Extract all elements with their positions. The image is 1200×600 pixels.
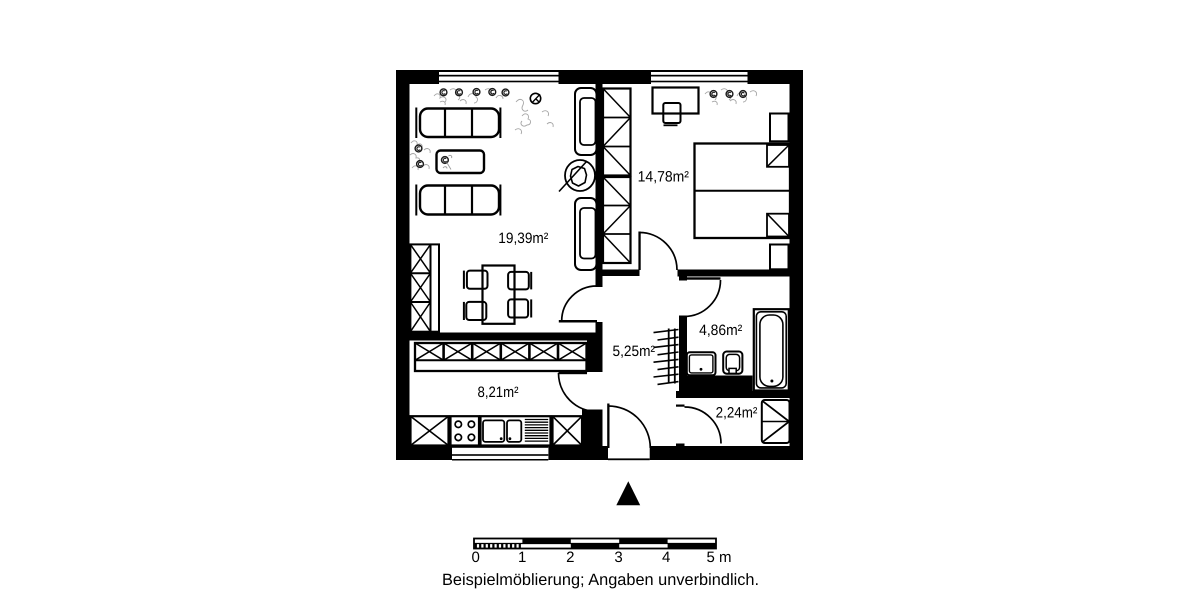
svg-text:8,21m²: 8,21m² <box>478 384 519 401</box>
svg-text:1: 1 <box>518 549 526 566</box>
svg-text:5,25m²: 5,25m² <box>613 343 656 360</box>
svg-text:0: 0 <box>472 549 480 566</box>
svg-text:14,78m²: 14,78m² <box>638 169 689 186</box>
svg-text:19,39m²: 19,39m² <box>498 230 548 247</box>
svg-text:Beispielmöblierung; Angaben un: Beispielmöblierung; Angaben unverbindlic… <box>442 571 759 589</box>
svg-text:4,86m²: 4,86m² <box>699 322 742 339</box>
svg-text:2,24m²: 2,24m² <box>716 404 758 421</box>
svg-text:4: 4 <box>662 549 670 566</box>
svg-text:2: 2 <box>566 549 574 566</box>
svg-text:5 m: 5 m <box>706 549 731 566</box>
svg-text:3: 3 <box>614 549 622 566</box>
